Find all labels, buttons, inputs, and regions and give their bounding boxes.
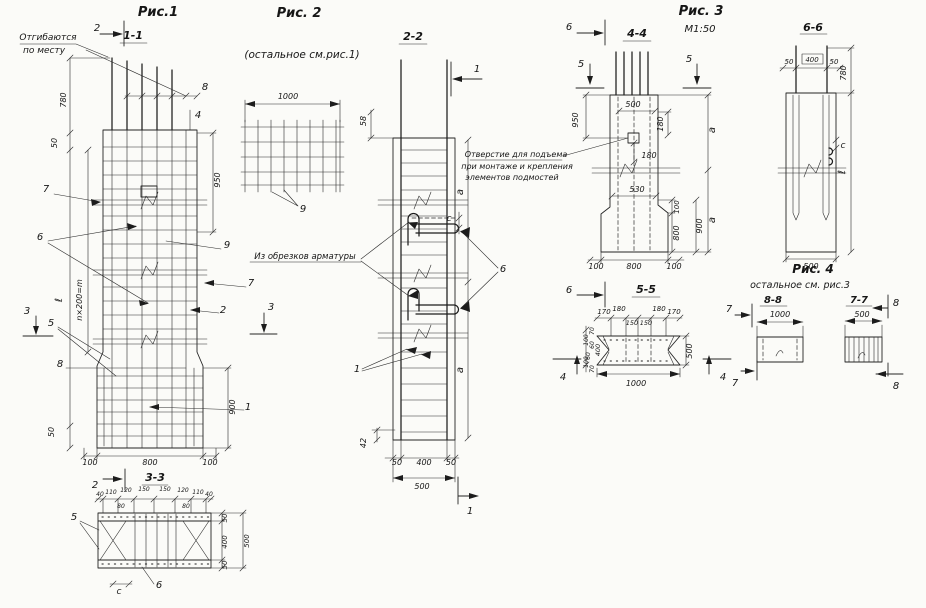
sec33-part-5: 5 <box>71 512 77 523</box>
fig1-dim-ticks <box>67 55 231 459</box>
fig4-sec77-title: 7-7 <box>850 295 868 306</box>
fig2-hairpin-bars <box>408 214 419 320</box>
fig3-dim-lines <box>583 95 711 263</box>
fig1-cut2-bottom-arrowhead <box>113 476 123 482</box>
fig2-dim-a-bottom: a <box>455 367 466 373</box>
sec33-dim-400: 400 <box>221 535 229 549</box>
sec55-dim-150a: 150 <box>626 319 638 327</box>
fig1-cut3-right-label: 3 <box>268 302 274 313</box>
fig1-dim-100-left: 100 <box>82 458 97 467</box>
fig2-dim-1000: 1000 <box>278 92 298 101</box>
fig2-part-1: 1 <box>354 364 360 375</box>
fig2-mesh-bars <box>241 120 344 192</box>
fig3-dim-a-top: a <box>707 127 718 133</box>
fig1-cut2-top-arrowhead <box>113 31 123 37</box>
fig2-note: Из обрезков арматуры <box>254 252 356 262</box>
fig2-dim-50-left: 50 <box>392 458 402 467</box>
sec33-dim-40b: 40 <box>205 491 213 498</box>
sec55-dim-170a: 170 <box>597 308 611 316</box>
sec55-dim-180a: 180 <box>612 305 626 313</box>
fig3-dim-ticks <box>583 92 711 263</box>
sec66-title: 6-6 <box>803 21 823 34</box>
fig3-dim-a-bottom: a <box>707 217 718 223</box>
fig4-cut7-top-label: 7 <box>726 304 733 315</box>
fig3-dim-800-side: 800 <box>672 225 681 240</box>
fig3-dim-100-left: 100 <box>588 262 603 271</box>
sec33-dim-40a: 40 <box>96 491 104 498</box>
fig4-cut7-bottom-label: 7 <box>732 378 739 389</box>
sec55-x-inner <box>603 336 674 365</box>
fig1-dim-lines <box>70 58 231 459</box>
sec33-dim-150b: 150 <box>159 486 171 493</box>
fig3-dim-900: 900 <box>695 218 704 233</box>
fig1-part-5: 5 <box>48 318 54 329</box>
fig3-dim-950: 950 <box>571 112 580 127</box>
fig3-note-line3: элементов подмостей <box>465 173 558 182</box>
fig2-title: Рис. 2 <box>277 6 322 21</box>
rebar-drawing-svg: Рис.1 1-1 Отгибаются по месту 2 780 8 4 … <box>0 0 926 608</box>
sec55-dim-170b: 170 <box>667 308 681 316</box>
sec66-column-outline <box>786 93 836 252</box>
fig1-stirrup-rows <box>97 147 203 436</box>
fig3-lifting-hole <box>628 133 639 143</box>
fig1-part-6: 6 <box>37 232 43 243</box>
fig4-dim-lines <box>757 321 882 337</box>
fig4-dim-arrows <box>757 318 882 325</box>
fig2-rungs <box>401 150 447 432</box>
fig3-cut5-flags <box>576 64 711 88</box>
fig4-sec77-dim-500: 500 <box>854 310 869 319</box>
fig3-scale: М1:50 <box>684 24 715 35</box>
fig2-dim-58: 58 <box>359 116 368 126</box>
sec55-dim-70b: 70 <box>589 365 596 373</box>
sec33-outline <box>98 513 211 568</box>
sec55-inner-dashed-bars <box>626 338 651 364</box>
fig3-cut5-left-label: 5 <box>578 59 584 70</box>
fig3-section-mark: 4-4 <box>626 27 647 40</box>
fig2-cut1-bottom-arrowhead <box>469 493 479 499</box>
fig1-elevation: Рис.1 1-1 Отгибаются по месту 2 780 8 4 … <box>19 5 277 491</box>
sec33-x-braces <box>100 521 209 560</box>
fig2-dim-c: c <box>447 214 452 224</box>
sec55-dim-70a: 70 <box>589 327 596 335</box>
sec66-hook-marks <box>829 148 833 165</box>
fig2-hook-bars <box>416 224 459 314</box>
fig2-cut1-bottom-label: 1 <box>467 506 473 517</box>
sec55-dim-150b: 150 <box>640 319 652 327</box>
fig4-sec77-hatch-bars <box>849 337 878 362</box>
fig3-cut5-arrowheads <box>587 76 700 85</box>
fig2-subtitle: (остальное см.рис.1) <box>244 49 359 61</box>
fig2-part-6: 6 <box>500 264 506 275</box>
sec33-vertical-bars <box>135 514 176 567</box>
fig4-cut8-top-label: 8 <box>893 298 899 309</box>
fig3-dim-100-step: 100 <box>673 200 681 214</box>
fig4-cut8-bottom-label: 8 <box>893 381 899 392</box>
fig1-part-7-left: 7 <box>43 184 50 195</box>
sec55-dim-500: 500 <box>685 343 694 358</box>
fig3-break-mark <box>592 160 680 177</box>
fig1-note-line2: по месту <box>23 46 66 56</box>
sec33-dim-120a: 120 <box>120 487 132 494</box>
sec33-dim-c: c <box>117 587 122 597</box>
sec66-dim-l: ℓ <box>837 170 848 174</box>
sec66-dim-50-right: 50 <box>830 58 839 66</box>
fig4-sec88-squiggle <box>776 351 783 356</box>
fig1-dim-l: ℓ <box>54 298 65 302</box>
fig1-lifting-hole <box>141 186 157 197</box>
sec33-dim-50-top: 50 <box>221 513 229 522</box>
fig2-column-outline <box>393 138 455 440</box>
sec33-dim-110b: 110 <box>192 489 204 496</box>
sec66-dim-400: 400 <box>805 56 819 64</box>
fig1-section-mark: 1-1 <box>123 29 143 42</box>
fig1-dim-900: 900 <box>228 399 237 414</box>
fig3-cut6-top-arrowhead <box>594 30 604 36</box>
fig3-cut6-bottom-arrowhead <box>594 292 604 298</box>
fig1-dim-50-top: 50 <box>50 138 59 148</box>
fig3-dim-100-right: 100 <box>666 262 681 271</box>
fig3-note-line1: Отверстие для подъема <box>465 150 568 159</box>
fig1-cut2-top-label: 2 <box>94 23 100 34</box>
fig3-cut6-top-label: 6 <box>566 22 572 33</box>
fig3-cut6-bottom-label: 6 <box>566 285 572 296</box>
fig3-cut5-right-label: 5 <box>686 54 692 65</box>
fig1-part-9: 9 <box>224 240 230 251</box>
fig4-sec88-body <box>757 337 803 362</box>
fig2-dim-400: 400 <box>416 458 431 467</box>
fig1-cut3-left-label: 3 <box>24 306 30 317</box>
sec33-leaders <box>80 521 154 584</box>
fig2-mesh-leaders <box>272 190 298 206</box>
fig1-dim-950: 950 <box>213 172 222 187</box>
sec33-dim-150a: 150 <box>138 486 150 493</box>
sec66-dim-780: 780 <box>839 65 848 80</box>
drawing-sheet: Рис.1 1-1 Отгибаются по месту 2 780 8 4 … <box>0 0 926 608</box>
fig3-dim-500: 500 <box>625 100 640 109</box>
fig3-elevation: Рис. 3 М1:50 4-4 6 5 5 950 500 180 Отвер… <box>461 4 723 307</box>
fig2-dim-500: 500 <box>414 482 429 491</box>
sec66-protruding-bars <box>796 46 827 93</box>
fig3-note-line2: при монтаже и крепления <box>461 162 573 171</box>
fig2-cut1-top-arrowhead <box>452 76 462 82</box>
fig2-section-mark: 2-2 <box>403 30 423 43</box>
fig2-cut1-bottom-flag <box>458 477 476 504</box>
fig1-dim-780: 780 <box>59 92 68 107</box>
sec33-dim-50-bottom: 50 <box>221 560 229 569</box>
fig2-mesh-dim <box>245 100 340 122</box>
sec33-dim-80-right: 80 <box>182 503 190 510</box>
fig4-sec88-dim-1000: 1000 <box>770 310 790 319</box>
fig2-protruding-bars <box>401 60 447 138</box>
fig3-protruding-bars <box>616 52 648 95</box>
fig2-dim-50-right: 50 <box>446 458 456 467</box>
sec33-dim-80-left: 80 <box>117 503 125 510</box>
fig3-dim-180-below: 180 <box>641 151 656 160</box>
fig1-note-line1: Отгибаются <box>19 33 77 43</box>
fig1-cut3-flags <box>23 313 277 336</box>
section-5-5: 5-5 170 180 180 170 150 150 70 100 60 40… <box>553 283 731 388</box>
fig1-protruding-bars <box>112 58 172 130</box>
fig4-cut7-arrowheads <box>741 312 755 374</box>
sec55-cut4-left-label: 4 <box>560 372 566 383</box>
fig3-dim-180-side: 180 <box>656 116 665 131</box>
fig4-sec88-dashed-bars <box>763 339 797 360</box>
sec33-dim-110a: 110 <box>105 489 117 496</box>
sec33-dim-120b: 120 <box>177 487 189 494</box>
fig1-cut2-bottom-label: 2 <box>92 480 98 491</box>
sec66-slots <box>793 95 829 220</box>
sec33-rebar-dots <box>102 517 209 564</box>
sec66-dim-c: c <box>841 141 846 151</box>
sec33-part-6: 6 <box>156 580 162 591</box>
fig4-sec88-title: 8-8 <box>764 295 782 306</box>
fig1-part-1: 1 <box>245 402 251 413</box>
sec55-title: 5-5 <box>636 283 656 296</box>
fig1-dim-50-bottom: 50 <box>47 427 56 437</box>
fig2: Рис. 2 (остальное см.рис.1) 1000 9 2-2 1… <box>241 6 506 517</box>
section-6-6: 6-6 50 400 50 780 c ℓ 500 <box>778 21 854 271</box>
fig1-part-2: 2 <box>220 305 226 316</box>
fig1-dim-spacing: n×200=m <box>75 279 84 321</box>
fig3-dim-530: 530 <box>629 185 644 194</box>
sec55-dim-400: 400 <box>594 344 602 356</box>
fig2-cut1-top-label: 1 <box>474 64 480 75</box>
fig2-dim-ticks <box>368 109 471 461</box>
fig2-corner-bars <box>401 138 447 440</box>
fig4: Рис. 4 остальное см. рис.3 8-8 1000 7-7 … <box>726 262 903 392</box>
fig4-title: Рис. 4 <box>792 262 833 276</box>
fig3-title: Рис. 3 <box>679 4 724 19</box>
fig4-sec77-body <box>845 337 882 362</box>
sec33-dim-500: 500 <box>243 534 251 548</box>
sec33-title: 3-3 <box>145 471 165 484</box>
sec66-dim-50-left: 50 <box>785 58 794 66</box>
fig2-dim-a-top: a <box>455 189 466 195</box>
fig1-title: Рис.1 <box>138 5 178 20</box>
fig1-break-marks <box>93 192 207 348</box>
fig1-part-8-top: 8 <box>202 82 208 93</box>
sec55-dim-180b: 180 <box>652 305 666 313</box>
sec55-cut4-right-label: 4 <box>720 372 726 383</box>
fig2-part-9: 9 <box>300 204 306 215</box>
sec55-dim-1000: 1000 <box>626 379 646 388</box>
fig2-dim-42: 42 <box>359 438 368 448</box>
fig1-part-4: 4 <box>195 110 201 121</box>
fig3-dim-800-bottom: 800 <box>626 262 641 271</box>
fig3-inner-dashed-bars <box>618 97 650 252</box>
fig1-dim-800: 800 <box>142 458 157 467</box>
fig2-break-marks <box>378 192 468 342</box>
fig1-part-8-bottom: 8 <box>57 359 63 370</box>
fig2-leaders <box>361 222 498 371</box>
fig4-subtitle: остальное см. рис.3 <box>750 280 850 291</box>
fig1-part-7-right: 7 <box>248 278 255 289</box>
fig1-dim-100-right: 100 <box>202 458 217 467</box>
